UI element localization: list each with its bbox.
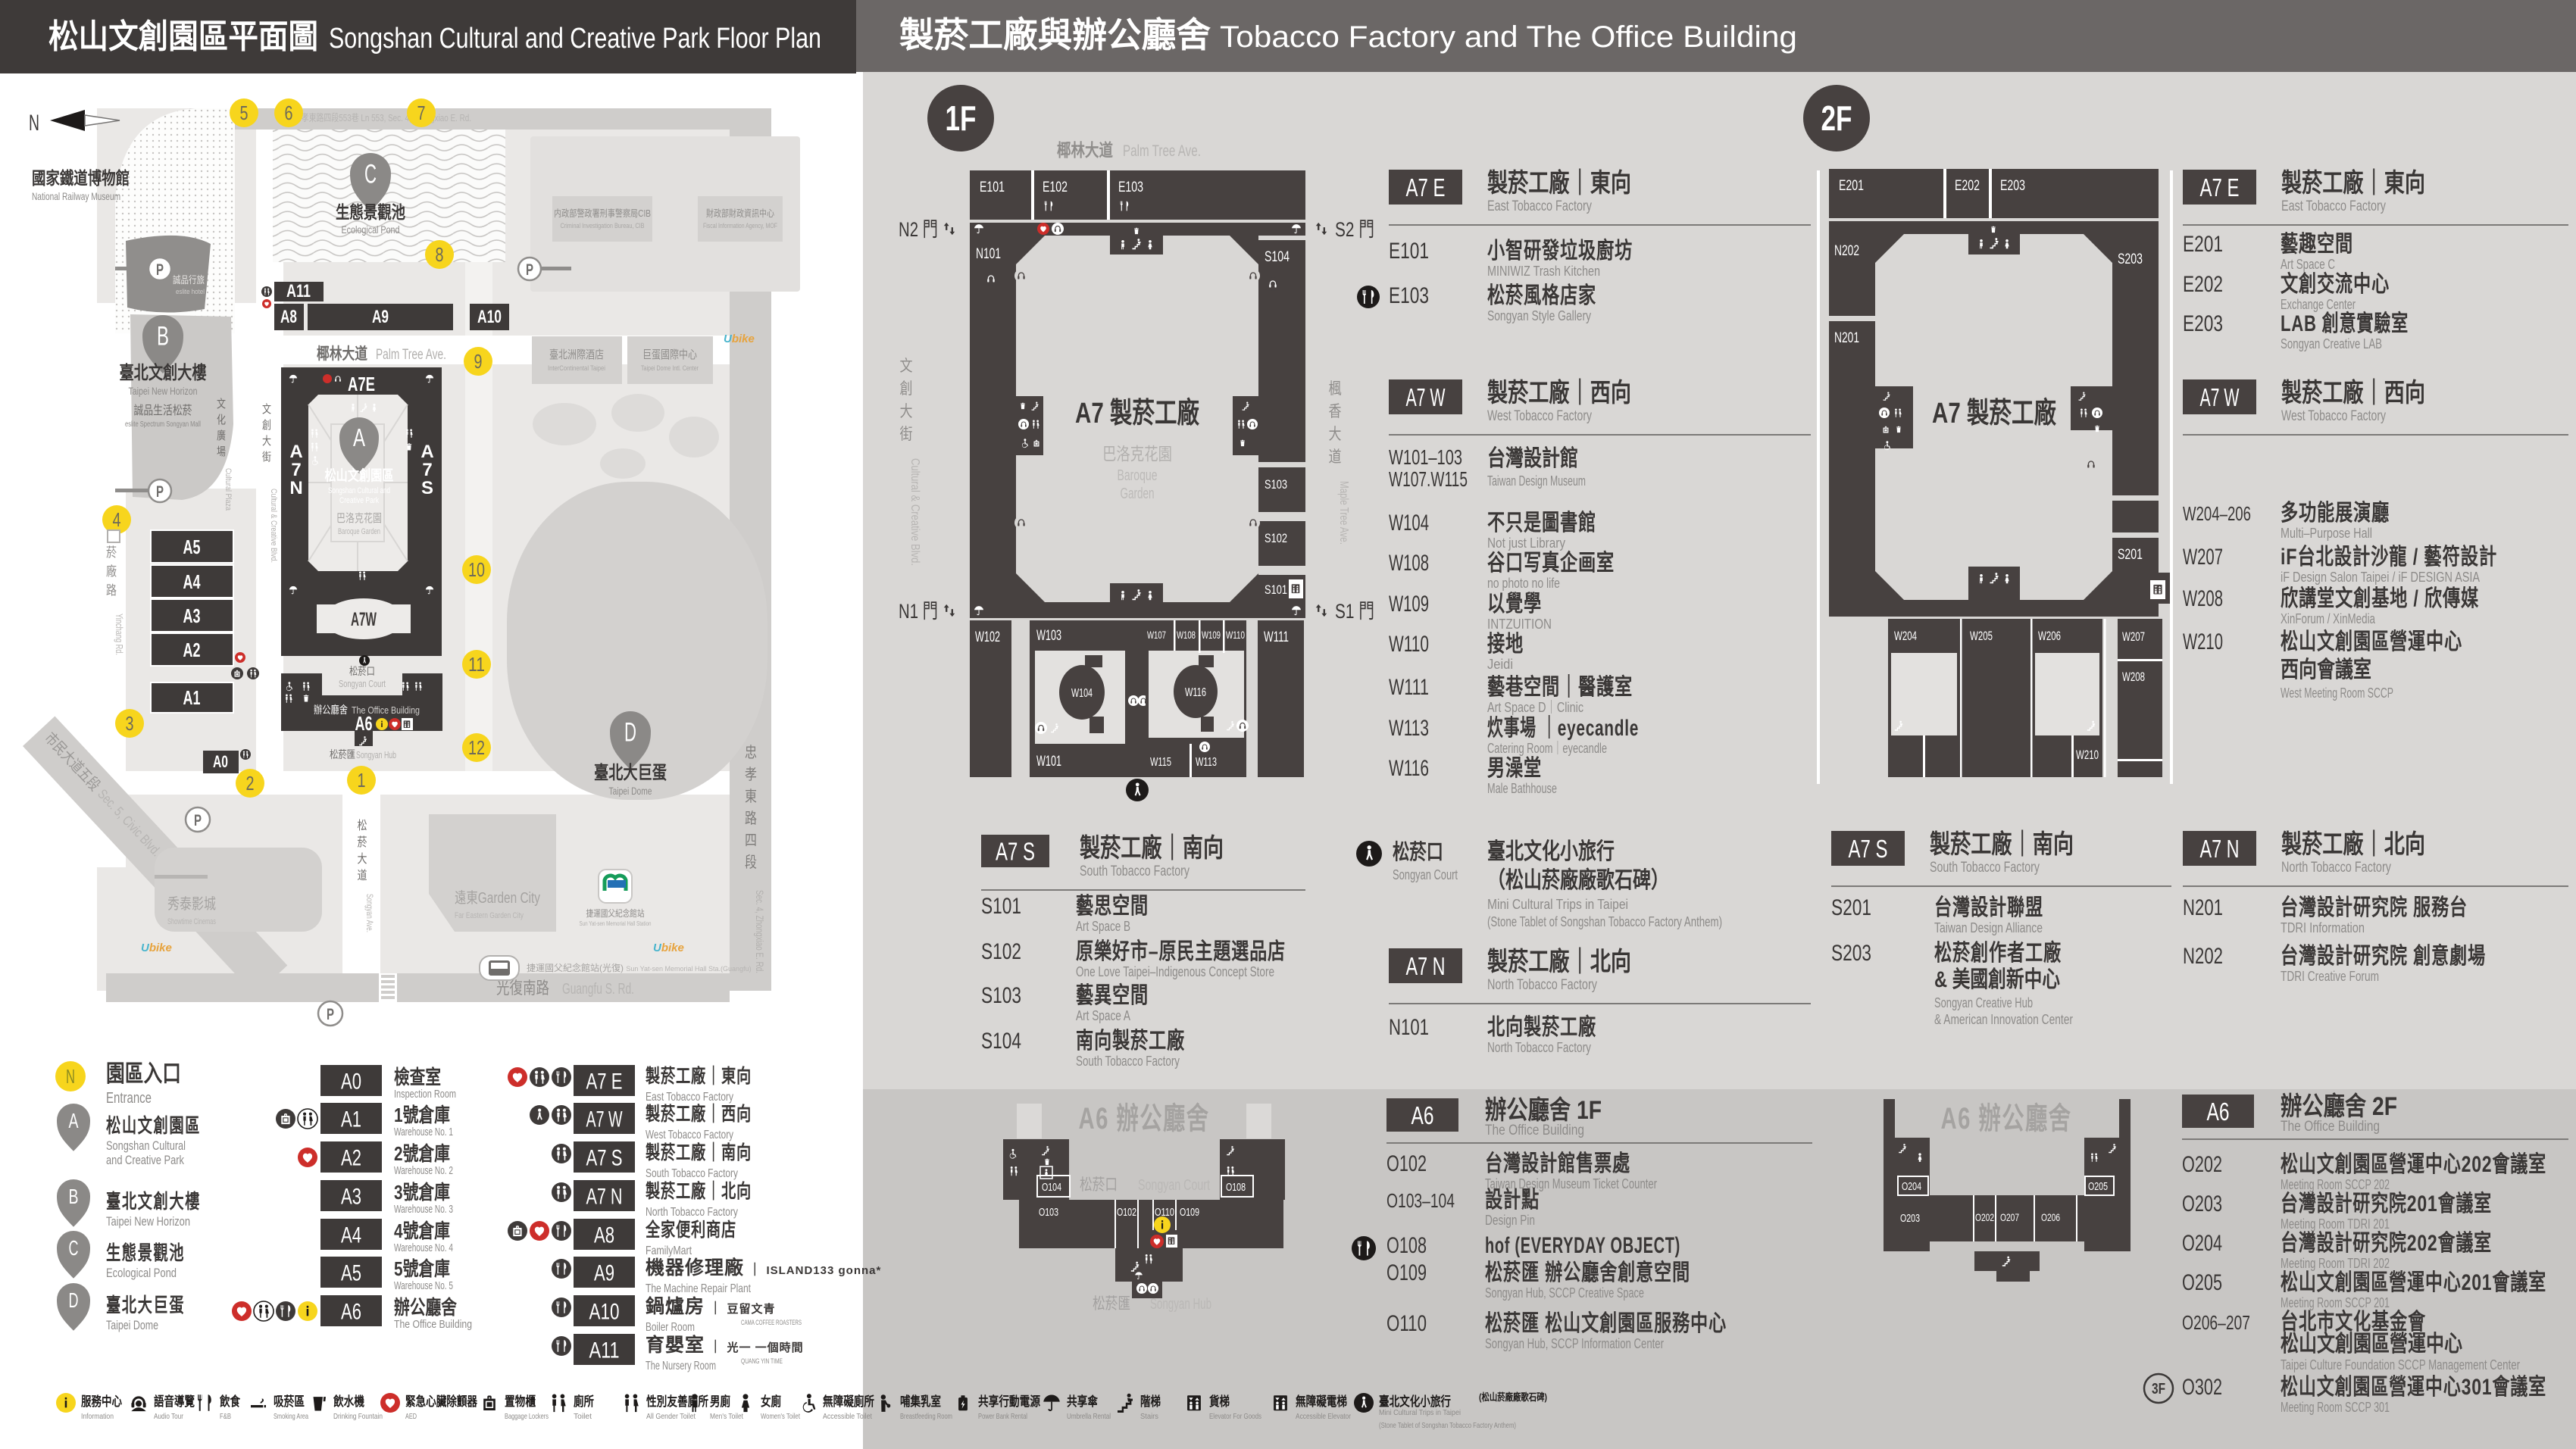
svg-text:1F: 1F <box>946 98 977 138</box>
svg-text:West Tobacco Factory: West Tobacco Factory <box>2281 408 2386 424</box>
svg-text:W107.W115: W107.W115 <box>1389 467 1468 491</box>
svg-text:A7 E: A7 E <box>1406 173 1446 201</box>
svg-text:松山文創園區營運中心202會議室: 松山文創園區營運中心202會議室 <box>2281 1151 2546 1177</box>
svg-text:A10: A10 <box>589 1299 620 1324</box>
svg-text:The Nursery Room: The Nursery Room <box>646 1360 716 1372</box>
svg-text:Stairs: Stairs <box>1140 1412 1158 1421</box>
svg-text:Breastfeeding Room: Breastfeeding Room <box>900 1412 952 1421</box>
svg-text:共享傘: 共享傘 <box>1067 1394 1099 1409</box>
svg-text:台灣設計研究院 服務台: 台灣設計研究院 服務台 <box>2281 895 2468 920</box>
svg-text:O205: O205 <box>2182 1270 2222 1295</box>
svg-text:S104: S104 <box>1265 249 1290 265</box>
svg-text:S203: S203 <box>1831 941 1871 966</box>
svg-text:接地: 接地 <box>1487 632 1524 657</box>
svg-text:不只是圖書館: 不只是圖書館 <box>1487 510 1596 536</box>
svg-text:西向會議室: 西向會議室 <box>2281 657 2371 682</box>
svg-text:North Tobacco Factory: North Tobacco Factory <box>646 1206 738 1219</box>
svg-text:C: C <box>69 1236 79 1260</box>
svg-text:Male Bathhouse: Male Bathhouse <box>1487 781 1557 796</box>
svg-text:S203: S203 <box>2118 251 2143 267</box>
svg-text:W208: W208 <box>2122 670 2145 684</box>
svg-text:廁所: 廁所 <box>574 1394 594 1409</box>
svg-text:Audio Tour: Audio Tour <box>154 1412 183 1421</box>
svg-text:Songshan Cultural and Creative: Songshan Cultural and Creative Park Floo… <box>329 23 821 55</box>
svg-text:Taipei Dome: Taipei Dome <box>609 785 652 797</box>
svg-text:(Stone Tablet of Songshan Toba: (Stone Tablet of Songshan Tobacco Factor… <box>1379 1421 1516 1430</box>
svg-text:街: 街 <box>262 451 271 464</box>
svg-text:3: 3 <box>126 712 134 735</box>
svg-text:S104: S104 <box>981 1029 1021 1054</box>
svg-text:巴洛克花園: 巴洛克花園 <box>1102 444 1172 464</box>
svg-text:W108: W108 <box>1389 551 1429 576</box>
svg-text:秀泰影城: 秀泰影城 <box>167 895 216 913</box>
svg-text:飲水機: 飲水機 <box>333 1394 364 1409</box>
svg-text:O207: O207 <box>2000 1211 2019 1223</box>
svg-text:松菸創作者工廠: 松菸創作者工廠 <box>1934 940 2062 966</box>
svg-text:E101: E101 <box>980 180 1005 195</box>
svg-text:eslite hotel: eslite hotel <box>176 288 205 295</box>
svg-text:Palm Tree Ave.: Palm Tree Ave. <box>376 347 446 363</box>
svg-text:Design Pin: Design Pin <box>1485 1213 1535 1228</box>
svg-text:(松山菸廠廠歌石碑): (松山菸廠廠歌石碑) <box>1479 1391 1547 1403</box>
svg-text:N1 門: N1 門 <box>899 600 938 623</box>
svg-text:生態景觀池: 生態景觀池 <box>336 202 405 222</box>
svg-text:10: 10 <box>468 558 485 581</box>
svg-text:Guangfu S. Rd.: Guangfu S. Rd. <box>562 981 634 998</box>
svg-text:遠東Garden City: 遠東Garden City <box>455 889 540 907</box>
svg-text:原樂好市–原民主題選品店: 原樂好市–原民主題選品店 <box>1076 938 1286 964</box>
svg-text:P: P <box>526 261 533 279</box>
svg-text:Meeting Room SCCP 201: Meeting Room SCCP 201 <box>2281 1295 2390 1310</box>
svg-text:松山文創園區: 松山文創園區 <box>325 467 394 484</box>
svg-text:椰林大道: 椰林大道 <box>1057 140 1113 160</box>
svg-text:and Creative Park: and Creative Park <box>106 1153 184 1167</box>
svg-text:A6 辦公廳舍: A6 辦公廳舍 <box>1079 1101 1210 1135</box>
svg-text:南向製菸工廠: 南向製菸工廠 <box>1076 1028 1185 1054</box>
svg-text:Songyan Hub, SCCP Information: Songyan Hub, SCCP Information Center <box>1485 1336 1664 1351</box>
svg-text:Warehouse No. 3: Warehouse No. 3 <box>394 1203 453 1216</box>
svg-text:Information: Information <box>81 1412 114 1421</box>
svg-text:Women's Toilet: Women's Toilet <box>761 1412 800 1421</box>
svg-text:W115: W115 <box>1150 756 1171 769</box>
svg-text:E103: E103 <box>1118 180 1143 195</box>
svg-text:台灣設計研究院202會議室: 台灣設計研究院202會議室 <box>2281 1230 2492 1256</box>
svg-text:Ecological Pond: Ecological Pond <box>106 1266 177 1280</box>
svg-text:以覺學: 以覺學 <box>1487 592 1542 617</box>
svg-text:製菸工廠｜北向: 製菸工廠｜北向 <box>2281 829 2425 859</box>
svg-text:E201: E201 <box>2183 232 2223 257</box>
svg-text:服務中心: 服務中心 <box>81 1394 122 1409</box>
svg-text:Cultural Plaza: Cultural Plaza <box>224 468 233 511</box>
svg-text:Power Bank Rental: Power Bank Rental <box>978 1412 1027 1421</box>
svg-text:E202: E202 <box>1955 178 1980 194</box>
svg-text:至忠孝東路四段553巷 Ln 553, Sec. 4, Z: 至忠孝東路四段553巷 Ln 553, Sec. 4, Zhongxiao E.… <box>286 112 471 123</box>
svg-text:North Tobacco Factory: North Tobacco Factory <box>1487 1040 1591 1055</box>
svg-text:Ecological Pond: Ecological Pond <box>342 223 400 236</box>
svg-text:Elevator For Goods: Elevator For Goods <box>1209 1412 1261 1421</box>
svg-text:設計點: 設計點 <box>1485 1187 1540 1213</box>
svg-text:O302: O302 <box>2182 1375 2222 1400</box>
svg-text:South Tobacco Factory: South Tobacco Factory <box>1076 1054 1180 1069</box>
svg-text:A7 E: A7 E <box>2200 173 2240 201</box>
svg-text:N201: N201 <box>2183 895 2223 920</box>
svg-text:8: 8 <box>436 243 444 266</box>
svg-text:Ubike: Ubike <box>141 942 172 954</box>
svg-text:MINIWIZ Trash Kitchen: MINIWIZ Trash Kitchen <box>1487 264 1600 279</box>
svg-text:North Tobacco Factory: North Tobacco Factory <box>1487 977 1597 993</box>
svg-text:文創交流中心: 文創交流中心 <box>2281 271 2390 297</box>
svg-text:松菸匯: 松菸匯 <box>330 748 355 760</box>
svg-text:O110: O110 <box>1386 1311 1427 1336</box>
svg-text:哺集乳室: 哺集乳室 <box>900 1394 941 1409</box>
svg-text:Criminal Investigation Bureau,: Criminal Investigation Bureau, CIB <box>561 222 645 230</box>
svg-text:台灣設計館售票處: 台灣設計館售票處 <box>1485 1151 1630 1176</box>
svg-text:A6: A6 <box>2207 1098 2230 1126</box>
svg-text:iF台北設計沙龍 / 藝符設計: iF台北設計沙龍 / 藝符設計 <box>2281 544 2497 570</box>
svg-text:創: 創 <box>262 419 271 432</box>
svg-text:巨蛋國際中心: 巨蛋國際中心 <box>642 348 697 361</box>
svg-text:松山文創園區營運中心: 松山文創園區營運中心 <box>2281 629 2462 654</box>
svg-text:East Tobacco Factory: East Tobacco Factory <box>1487 198 1592 214</box>
svg-text:A8: A8 <box>594 1223 614 1248</box>
svg-text:Tobacco Factory and The Office: Tobacco Factory and The Office Building <box>1220 20 1797 54</box>
svg-text:East Tobacco Factory: East Tobacco Factory <box>646 1091 733 1104</box>
svg-text:A6: A6 <box>341 1299 361 1324</box>
svg-text:性別友善廁所: 性別友善廁所 <box>646 1394 708 1409</box>
svg-text:W208: W208 <box>2183 586 2223 611</box>
svg-text:孝: 孝 <box>745 766 757 783</box>
svg-text:O204: O204 <box>2182 1231 2222 1256</box>
svg-text:S103: S103 <box>981 983 1021 1008</box>
svg-text:辦公廳舍 1F: 辦公廳舍 1F <box>1485 1095 1602 1125</box>
svg-text:A9: A9 <box>372 307 389 327</box>
svg-text:台灣設計館: 台灣設計館 <box>1487 445 1578 471</box>
svg-text:松菸口: 松菸口 <box>1393 840 1443 863</box>
svg-text:Inspection Room: Inspection Room <box>394 1088 456 1101</box>
svg-text:道: 道 <box>1329 448 1342 466</box>
svg-text:S102: S102 <box>1265 531 1287 545</box>
svg-text:W116: W116 <box>1185 686 1206 699</box>
svg-text:A7 S: A7 S <box>1849 835 1888 863</box>
svg-text:Songshan Cultural: Songshan Cultural <box>106 1138 186 1153</box>
svg-text:O206–207: O206–207 <box>2182 1311 2250 1334</box>
svg-text:W104: W104 <box>1389 511 1429 536</box>
svg-text:Accessible Toilet: Accessible Toilet <box>823 1412 872 1421</box>
svg-text:TDRI Creative Forum: TDRI Creative Forum <box>2281 969 2379 984</box>
svg-text:松山文創園區營運中心: 松山文創園區營運中心 <box>2281 1331 2462 1357</box>
svg-text:Art Space D｜Clinic: Art Space D｜Clinic <box>1487 700 1583 715</box>
svg-text:内政部警政署刑事警察局CIB: 内政部警政署刑事警察局CIB <box>554 208 651 219</box>
svg-text:C: C <box>364 160 377 189</box>
svg-text:製菸工廠｜南向: 製菸工廠｜南向 <box>1080 833 1224 863</box>
svg-text:松山文創園區平面圖: 松山文創園區平面圖 <box>48 18 318 55</box>
svg-text:O102: O102 <box>1117 1206 1136 1219</box>
svg-text:A3: A3 <box>183 604 201 627</box>
svg-text:段: 段 <box>745 854 757 871</box>
svg-text:W111: W111 <box>1264 629 1289 645</box>
svg-text:E201: E201 <box>1839 178 1864 194</box>
svg-text:P: P <box>194 812 202 829</box>
svg-text:West Tobacco Factory: West Tobacco Factory <box>1487 408 1592 424</box>
svg-text:Men's Toilet: Men's Toilet <box>710 1412 743 1421</box>
svg-text:臺北大巨蛋: 臺北大巨蛋 <box>594 763 667 783</box>
svg-text:A5: A5 <box>183 536 201 558</box>
svg-text:A7 S: A7 S <box>996 838 1035 866</box>
svg-text:創: 創 <box>900 380 913 398</box>
svg-text:松菸匯 辦公廳舍創意空間: 松菸匯 辦公廳舍創意空間 <box>1485 1260 1690 1285</box>
svg-text:hof (EVERYDAY OBJECT): hof (EVERYDAY OBJECT) <box>1485 1233 1680 1258</box>
svg-text:Meeting Room SCCP 301: Meeting Room SCCP 301 <box>2281 1400 2390 1415</box>
svg-text:Fiscal Information Agency, MOF: Fiscal Information Agency, MOF <box>703 222 777 230</box>
svg-text:The Office Building: The Office Building <box>394 1318 472 1331</box>
svg-text:N: N <box>29 111 39 136</box>
svg-text:O104: O104 <box>1042 1181 1061 1194</box>
svg-text:誠品生活松菸: 誠品生活松菸 <box>134 404 192 417</box>
svg-text:Songyan Hub: Songyan Hub <box>1150 1296 1211 1313</box>
svg-text:文: 文 <box>217 398 226 411</box>
svg-text:O103: O103 <box>1039 1206 1058 1219</box>
svg-text:Sec. 4, Zhongxiao E. Rd.: Sec. 4, Zhongxiao E. Rd. <box>754 890 766 973</box>
svg-text:3號倉庫: 3號倉庫 <box>394 1181 450 1204</box>
svg-text:Songyan Creative Hub: Songyan Creative Hub <box>1934 995 2033 1010</box>
svg-text:W206: W206 <box>2038 629 2061 643</box>
svg-text:O109: O109 <box>1180 1206 1199 1219</box>
svg-text:製菸工廠｜東向: 製菸工廠｜東向 <box>645 1065 752 1087</box>
svg-text:CAMA COFFEE ROASTERS: CAMA COFFEE ROASTERS <box>741 1319 802 1326</box>
svg-text:All Gender Toilet: All Gender Toilet <box>646 1412 696 1421</box>
svg-text:台灣設計研究院201會議室: 台灣設計研究院201會議室 <box>2281 1191 2492 1216</box>
svg-text:Not just Library: Not just Library <box>1487 536 1565 551</box>
svg-text:Maple Tree Ave.: Maple Tree Ave. <box>1337 481 1350 545</box>
svg-text:Cultural & Creative Blvd.: Cultural & Creative Blvd. <box>908 458 921 566</box>
svg-text:臺北文化小旅行: 臺北文化小旅行 <box>1379 1394 1451 1409</box>
svg-text:Songyan Creative LAB: Songyan Creative LAB <box>2281 336 2382 351</box>
svg-text:Songyan Court: Songyan Court <box>339 678 386 689</box>
svg-text:South Tobacco Factory: South Tobacco Factory <box>1930 860 2040 876</box>
svg-text:松菸匯: 松菸匯 <box>1093 1295 1130 1313</box>
svg-text:Garden: Garden <box>1121 486 1155 502</box>
svg-text:谷口写真企画室: 谷口写真企画室 <box>1487 550 1615 576</box>
svg-text:男澡堂: 男澡堂 <box>1487 756 1542 781</box>
svg-text:男廁: 男廁 <box>710 1394 730 1409</box>
svg-text:P: P <box>156 483 164 501</box>
svg-text:N101: N101 <box>976 246 1001 262</box>
svg-text:道: 道 <box>358 869 367 882</box>
svg-text:Toilet: Toilet <box>574 1412 592 1421</box>
svg-text:捷運國父紀念館站: 捷運國父紀念館站 <box>586 907 645 919</box>
svg-text:East Tobacco Factory: East Tobacco Factory <box>2281 198 2386 214</box>
svg-text:香: 香 <box>1329 403 1342 420</box>
svg-text:Meeting Room TDRI 201: Meeting Room TDRI 201 <box>2281 1216 2390 1232</box>
svg-text:A7 E: A7 E <box>586 1069 623 1094</box>
svg-text:A7S: A7S <box>420 442 433 498</box>
svg-text:1號倉庫: 1號倉庫 <box>394 1104 450 1126</box>
svg-text:置物櫃: 置物櫃 <box>505 1394 536 1409</box>
svg-text:O203: O203 <box>2182 1191 2222 1216</box>
svg-text:A1: A1 <box>341 1107 361 1132</box>
svg-text:忠: 忠 <box>745 744 757 761</box>
svg-text:路: 路 <box>106 583 117 598</box>
svg-text:Songyan Ave.: Songyan Ave. <box>364 894 375 932</box>
svg-text:臺北大巨蛋: 臺北大巨蛋 <box>106 1294 185 1316</box>
svg-text:A7E: A7E <box>348 373 375 395</box>
svg-text:誠品行旅: 誠品行旅 <box>173 274 205 286</box>
svg-text:辦公廳舍: 辦公廳舍 <box>314 704 348 716</box>
svg-text:A7 W: A7 W <box>1406 383 1446 411</box>
svg-text:製菸工廠｜北向: 製菸工廠｜北向 <box>1487 947 1631 976</box>
svg-text:松山文創園區營運中心301會議室: 松山文創園區營運中心301會議室 <box>2281 1374 2546 1400</box>
svg-text:台灣設計研究院 創意劇場: 台灣設計研究院 創意劇場 <box>2281 943 2486 969</box>
svg-text:Umbrella Rental: Umbrella Rental <box>1067 1412 1111 1421</box>
svg-text:臺北文創大樓: 臺北文創大樓 <box>120 362 207 383</box>
svg-text:Creative Park: Creative Park <box>339 496 379 505</box>
svg-text:Baroque Garden: Baroque Garden <box>338 527 380 536</box>
svg-text:W102: W102 <box>975 629 1000 645</box>
svg-text:W210: W210 <box>2183 629 2223 654</box>
svg-text:N202: N202 <box>1834 243 1859 259</box>
svg-text:全家便利商店: 全家便利商店 <box>645 1219 736 1241</box>
svg-text:2號倉庫: 2號倉庫 <box>394 1142 450 1165</box>
svg-text:Jeidi: Jeidi <box>1487 657 1513 672</box>
svg-text:South Tobacco Factory: South Tobacco Factory <box>1080 863 1190 879</box>
svg-text:The Office Building: The Office Building <box>1485 1123 1584 1138</box>
svg-text:A5: A5 <box>341 1260 361 1285</box>
svg-text:eslite Spectrum Songyan Mall: eslite Spectrum Songyan Mall <box>125 420 201 429</box>
svg-text:Drinking Fountain: Drinking Fountain <box>333 1412 383 1421</box>
svg-text:楓: 楓 <box>1329 380 1342 398</box>
svg-text:Warehouse No. 4: Warehouse No. 4 <box>394 1241 453 1254</box>
svg-text:Art Space B: Art Space B <box>1076 919 1130 934</box>
svg-text:N201: N201 <box>1834 330 1859 346</box>
svg-text:W108: W108 <box>1177 629 1196 641</box>
svg-text:D: D <box>69 1288 79 1312</box>
svg-text:O103–104: O103–104 <box>1386 1189 1455 1212</box>
svg-text:6: 6 <box>285 101 293 124</box>
svg-text:製菸工廠與辦公廳舍: 製菸工廠與辦公廳舍 <box>899 15 1211 55</box>
svg-text:N: N <box>66 1065 75 1088</box>
svg-text:& American Innovation Center: & American Innovation Center <box>1934 1012 2073 1027</box>
svg-text:2F: 2F <box>1821 98 1852 138</box>
svg-text:O203: O203 <box>1900 1212 1920 1225</box>
svg-text:Taiwan Design Museum: Taiwan Design Museum <box>1487 473 1586 489</box>
svg-text:生態景觀池: 生態景觀池 <box>106 1241 185 1264</box>
svg-text:W101: W101 <box>1036 754 1061 770</box>
svg-text:藝思空間: 藝思空間 <box>1076 894 1149 919</box>
svg-text:Far Eastern Garden City: Far Eastern Garden City <box>455 911 524 920</box>
svg-text:W116: W116 <box>1389 756 1429 781</box>
svg-text:Catering Room｜eyecandle: Catering Room｜eyecandle <box>1487 741 1607 756</box>
svg-text:A7 W: A7 W <box>2200 383 2240 411</box>
svg-text:Meeting Room TDRI 202: Meeting Room TDRI 202 <box>2281 1256 2390 1271</box>
svg-text:S201: S201 <box>2118 547 2143 563</box>
svg-text:1: 1 <box>358 769 366 792</box>
svg-text:F&B: F&B <box>220 1412 231 1421</box>
svg-text:製菸工廠｜西向: 製菸工廠｜西向 <box>1487 378 1631 408</box>
svg-text:E203: E203 <box>2183 311 2223 336</box>
svg-text:XinForum / XinMedia: XinForum / XinMedia <box>2281 611 2376 626</box>
svg-text:Songyan Court: Songyan Court <box>1393 867 1458 882</box>
svg-text:場: 場 <box>217 445 226 458</box>
svg-text:W204–206: W204–206 <box>2183 502 2251 525</box>
svg-text:園區入口: 園區入口 <box>106 1060 181 1087</box>
svg-text:A7 N: A7 N <box>586 1184 623 1209</box>
svg-text:大: 大 <box>900 403 913 420</box>
svg-text:松菸口: 松菸口 <box>349 665 375 677</box>
svg-text:財政部財政資訊中心: 財政部財政資訊中心 <box>706 208 774 219</box>
svg-text:臺北洲際酒店: 臺北洲際酒店 <box>549 348 604 361</box>
svg-text:菸: 菸 <box>358 835 367 849</box>
svg-text:Cultural & Creative Blvd.: Cultural & Creative Blvd. <box>269 489 278 563</box>
svg-text:N2 門: N2 門 <box>899 218 938 241</box>
svg-text:Taipei New Horizon: Taipei New Horizon <box>129 385 198 397</box>
svg-text:D: D <box>624 718 636 748</box>
svg-text:A7 N: A7 N <box>1406 952 1446 980</box>
svg-text:B: B <box>69 1185 79 1208</box>
svg-text:W205: W205 <box>1970 629 1993 643</box>
svg-text:A7 N: A7 N <box>2200 835 2240 863</box>
svg-text:A6 辦公廳舍: A6 辦公廳舍 <box>1941 1101 2072 1135</box>
svg-text:大: 大 <box>358 852 367 866</box>
svg-text:Entrance: Entrance <box>106 1090 152 1107</box>
svg-text:製菸工廠｜南向: 製菸工廠｜南向 <box>645 1141 752 1163</box>
svg-text:Accessible Elevator: Accessible Elevator <box>1296 1412 1351 1421</box>
svg-text:松山文創園區營運中心201會議室: 松山文創園區營運中心201會議室 <box>2281 1269 2546 1295</box>
svg-text:O108: O108 <box>1226 1181 1246 1194</box>
svg-text:多功能展演廳: 多功能展演廳 <box>2281 500 2390 526</box>
svg-text:製菸工廠｜西向: 製菸工廠｜西向 <box>2281 378 2425 408</box>
svg-text:E202: E202 <box>2183 272 2223 297</box>
svg-text:P: P <box>156 261 164 279</box>
svg-text:O102: O102 <box>1386 1151 1427 1176</box>
svg-text:廣: 廣 <box>217 429 226 442</box>
svg-text:N202: N202 <box>2183 944 2223 969</box>
svg-text:女廁: 女廁 <box>761 1394 781 1409</box>
svg-text:A7W: A7W <box>351 609 377 630</box>
svg-text:A7 製菸工廠: A7 製菸工廠 <box>1932 397 2056 429</box>
svg-text:無障礙電梯: 無障礙電梯 <box>1296 1394 1347 1409</box>
svg-text:W107: W107 <box>1147 629 1166 641</box>
svg-text:2: 2 <box>246 772 255 795</box>
svg-text:Ubike: Ubike <box>653 942 684 954</box>
svg-text:P: P <box>327 1006 334 1023</box>
svg-text:北向製菸工廠: 北向製菸工廠 <box>1487 1014 1596 1040</box>
svg-text:INTZUITION: INTZUITION <box>1487 617 1552 632</box>
svg-text:Taipei Dome Intl. Center: Taipei Dome Intl. Center <box>641 364 699 372</box>
svg-text:(Stone Tablet of Songshan Toba: (Stone Tablet of Songshan Tobacco Factor… <box>1487 914 1722 929</box>
svg-text:辦公廳舍 2F: 辦公廳舍 2F <box>2281 1091 2397 1121</box>
svg-text:West Meeting Room SCCP: West Meeting Room SCCP <box>2281 685 2393 701</box>
svg-text:Taipei New Horizon: Taipei New Horizon <box>106 1214 190 1229</box>
svg-text:臺北文創大樓: 臺北文創大樓 <box>106 1190 201 1213</box>
svg-text:A6: A6 <box>1411 1101 1434 1129</box>
svg-text:小智研發垃圾廚坊: 小智研發垃圾廚坊 <box>1487 238 1633 264</box>
svg-text:Taiwan Design Alliance: Taiwan Design Alliance <box>1934 920 2043 935</box>
svg-text:O205: O205 <box>2088 1180 2108 1193</box>
svg-text:S102: S102 <box>981 939 1021 964</box>
svg-text:W104: W104 <box>1071 687 1093 700</box>
svg-text:no photo no life: no photo no life <box>1487 576 1560 591</box>
svg-text:LAB 創意實驗室: LAB 創意實驗室 <box>2281 311 2409 336</box>
svg-text:東: 東 <box>745 788 757 805</box>
svg-text:E102: E102 <box>1043 180 1068 195</box>
svg-text:5: 5 <box>240 101 249 124</box>
svg-text:B: B <box>157 322 169 351</box>
svg-text:A7 W: A7 W <box>586 1107 623 1132</box>
svg-text:製菸工廠｜東向: 製菸工廠｜東向 <box>1487 168 1631 198</box>
svg-text:O108: O108 <box>1386 1233 1427 1258</box>
svg-text:W103: W103 <box>1036 628 1061 644</box>
svg-text:A7 S: A7 S <box>586 1145 623 1170</box>
